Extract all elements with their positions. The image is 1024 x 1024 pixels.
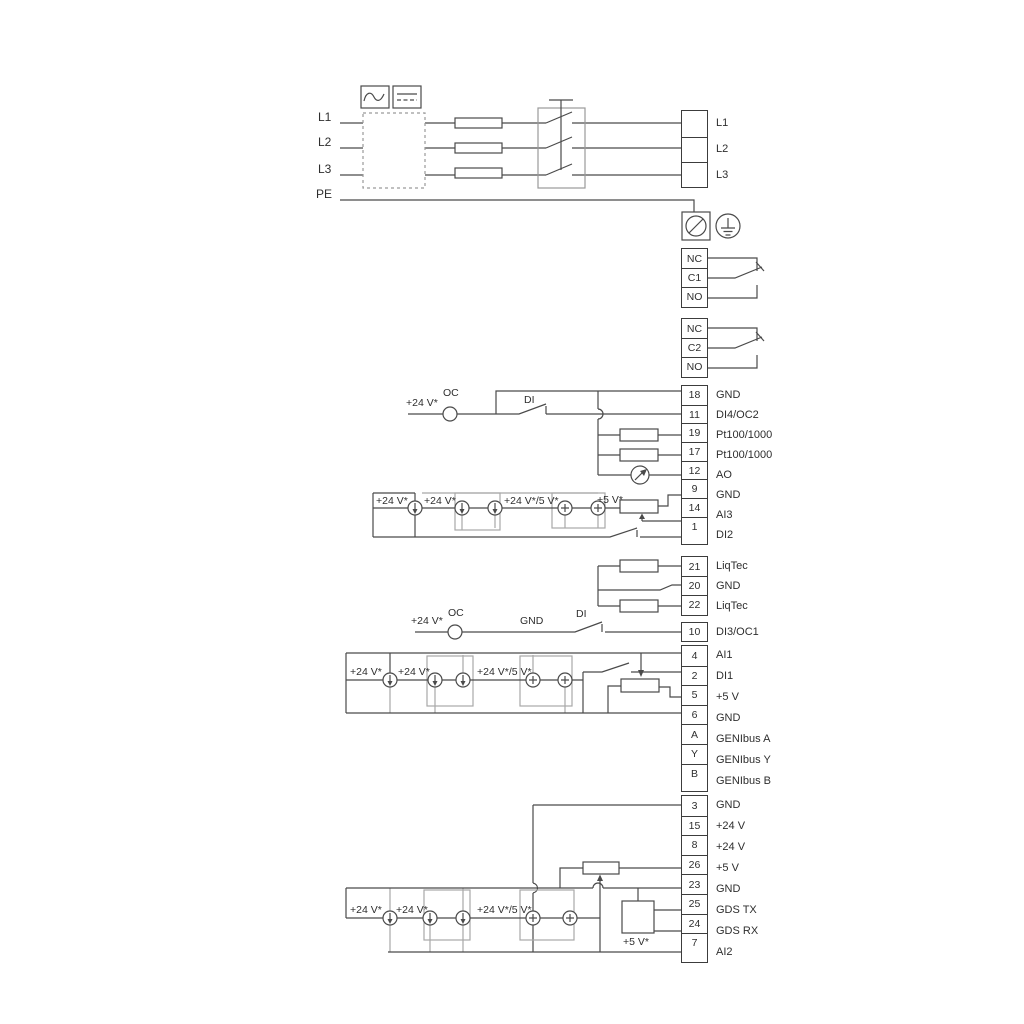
terminal-label: L1 (716, 117, 728, 130)
terminal-cell: NO (682, 357, 707, 376)
terminal-label: GND (716, 580, 740, 593)
relay2-contact (708, 328, 764, 368)
terminal-cell: 15 (682, 816, 707, 836)
terminal-label: +24 V (716, 841, 745, 854)
v5-label: +5 V* (623, 936, 649, 948)
terminal-cell: C2 (682, 338, 707, 357)
terminal-cell: 20 (682, 576, 707, 595)
terminal-cell: 11 (682, 405, 707, 424)
ac-symbol-icon (361, 86, 389, 108)
terminal-cell: 21 (682, 557, 707, 576)
terminal-label: GND (716, 883, 740, 896)
terminal-label: GND (716, 489, 740, 502)
terminal-label: Pt100/1000 (716, 449, 772, 462)
terminal-cell: 12 (682, 461, 707, 480)
terminal-cell (682, 162, 707, 188)
di2-switch-contact (373, 528, 681, 537)
terminal-cell: 14 (682, 498, 707, 517)
terminal-label: DI3/OC1 (716, 626, 759, 639)
v24-label: +24 V* (350, 666, 382, 678)
pt100-resistor-top (598, 429, 681, 441)
analog-output-icon (598, 466, 681, 484)
v5-label: +5 V* (597, 494, 623, 506)
mains-terminal-block (681, 110, 708, 188)
terminal-label: AO (716, 469, 732, 482)
terminal-cell: 1 (682, 517, 707, 536)
power-label-pe: PE (316, 187, 332, 201)
terminal-cell: NC (682, 319, 707, 338)
diagram-wires (0, 0, 1024, 1024)
power-label-l2: L2 (318, 135, 331, 149)
terminal-label: GDS RX (716, 925, 758, 938)
potentiometer-symbol (620, 495, 681, 521)
open-collector-icon (448, 625, 462, 639)
liqtec-wiring (598, 560, 681, 612)
oc-label: OC (448, 607, 464, 619)
terminal-label: Pt100/1000 (716, 429, 772, 442)
terminal-cell (682, 111, 707, 137)
di3-terminal-block: 10 (681, 622, 708, 642)
terminal-label: GND (716, 712, 740, 725)
terminal-cell: 3 (682, 796, 707, 816)
terminal-label: +5 V (716, 691, 739, 704)
terminal-label: GND (716, 799, 740, 812)
terminal-label: GDS TX (716, 904, 757, 917)
terminal-label: GENIbus B (716, 775, 771, 788)
open-collector-icon (443, 407, 457, 421)
v24-label: +24 V* (406, 397, 438, 409)
terminal-label: +5 V (716, 862, 739, 875)
terminal-label: +24 V (716, 820, 745, 833)
v24-label: +24 V* (376, 495, 408, 507)
fuse-icon (455, 143, 502, 153)
terminal-cell: 25 (682, 894, 707, 914)
relay1-terminal-block: NC C1 NO (681, 248, 708, 308)
terminal-cell: 22 (682, 595, 707, 614)
di-label: DI (576, 608, 587, 620)
terminal-cell: 10 (682, 623, 707, 640)
v24-5v-label: +24 V*/5 V* (504, 495, 559, 507)
terminal-cell: 17 (682, 442, 707, 461)
terminal-cell: B (682, 764, 707, 784)
terminal-cell: 5 (682, 685, 707, 705)
terminal-label: L2 (716, 143, 728, 156)
v24-5v-label: +24 V*/5 V* (477, 666, 532, 678)
v24-label: +24 V* (396, 904, 428, 916)
converter-box-icon (363, 113, 425, 188)
terminal-label: GENIbus Y (716, 754, 771, 767)
terminal-cell: 18 (682, 386, 707, 405)
terminal-cell: A (682, 724, 707, 744)
terminal-label: DI1 (716, 670, 733, 683)
di3-oc-row (415, 622, 681, 639)
terminal-label: GND (716, 389, 740, 402)
io1-terminal-block: 18 11 19 17 12 9 14 1 (681, 385, 708, 545)
terminal-label: L3 (716, 169, 728, 182)
resistor-symbol (620, 600, 658, 612)
terminal-label: DI2 (716, 529, 733, 542)
terminal-cell: Y (682, 744, 707, 764)
terminal-cell: 4 (682, 646, 707, 666)
ground-terminal-icon (682, 212, 710, 240)
di-switch-contact (462, 622, 681, 632)
terminal-cell (682, 137, 707, 163)
dc-symbol-icon (393, 86, 421, 108)
terminal-label: AI2 (716, 946, 733, 959)
fuse-icons (455, 118, 502, 178)
terminal-cell: 26 (682, 855, 707, 875)
gnd-label: GND (520, 615, 543, 627)
ai1-option-boxes (390, 655, 572, 713)
terminal-cell: 24 (682, 914, 707, 934)
pe-wire (340, 200, 694, 212)
ai1-group (346, 653, 681, 713)
terminal-cell: 23 (682, 874, 707, 894)
io2-terminal-block: 4 2 5 6 A Y B (681, 645, 708, 792)
terminal-cell: 2 (682, 666, 707, 686)
resistor-symbol (620, 449, 658, 461)
terminal-cell: 6 (682, 705, 707, 725)
resistor-symbol (620, 560, 658, 572)
di-label: DI (524, 394, 535, 406)
power-label-l1: L1 (318, 110, 331, 124)
wiring-diagram: L1 L2 L3 PE L1 L2 L3 NC C1 NO NC C2 NO 1… (0, 0, 1024, 1024)
terminal-cell: NC (682, 249, 707, 268)
terminal-label: AI1 (716, 649, 733, 662)
v24-label: +24 V* (424, 495, 456, 507)
liqtec-terminal-block: 21 20 22 (681, 556, 708, 616)
relay1-contact (708, 258, 764, 298)
terminal-label: LiqTec (716, 600, 748, 613)
earth-icon (716, 214, 740, 238)
terminal-label: AI3 (716, 509, 733, 522)
ai2-option-boxes (390, 888, 574, 952)
v24-label: +24 V* (411, 615, 443, 627)
gds-sensor-box (622, 888, 681, 933)
v24-label: +24 V* (398, 666, 430, 678)
potentiometer-symbol (560, 862, 681, 952)
v24-label: +24 V* (350, 904, 382, 916)
sensor-bus (598, 391, 603, 475)
resistor-symbol (620, 429, 658, 441)
terminal-cell: 7 (682, 933, 707, 953)
fuse-icon (455, 168, 502, 178)
mains-wiring (340, 123, 694, 212)
terminal-cell: NO (682, 287, 707, 306)
ai2-group (346, 805, 681, 952)
fuse-icon (455, 118, 502, 128)
v24-5v-label: +24 V*/5 V* (477, 904, 532, 916)
power-label-l3: L3 (318, 162, 331, 176)
relay2-terminal-block: NC C2 NO (681, 318, 708, 378)
potentiometer-symbol (608, 679, 681, 713)
terminal-label: DI4/OC2 (716, 409, 759, 422)
oc-label: OC (443, 387, 459, 399)
terminal-label: GENIbus A (716, 733, 770, 746)
terminal-label: LiqTec (716, 560, 748, 573)
terminal-cell: C1 (682, 268, 707, 287)
terminal-cell: 19 (682, 423, 707, 442)
terminal-cell: 8 (682, 835, 707, 855)
pt100-resistor-bottom (598, 449, 681, 461)
io3-terminal-block: 3 15 8 26 23 25 24 7 (681, 795, 708, 963)
terminal-cell: 9 (682, 479, 707, 498)
